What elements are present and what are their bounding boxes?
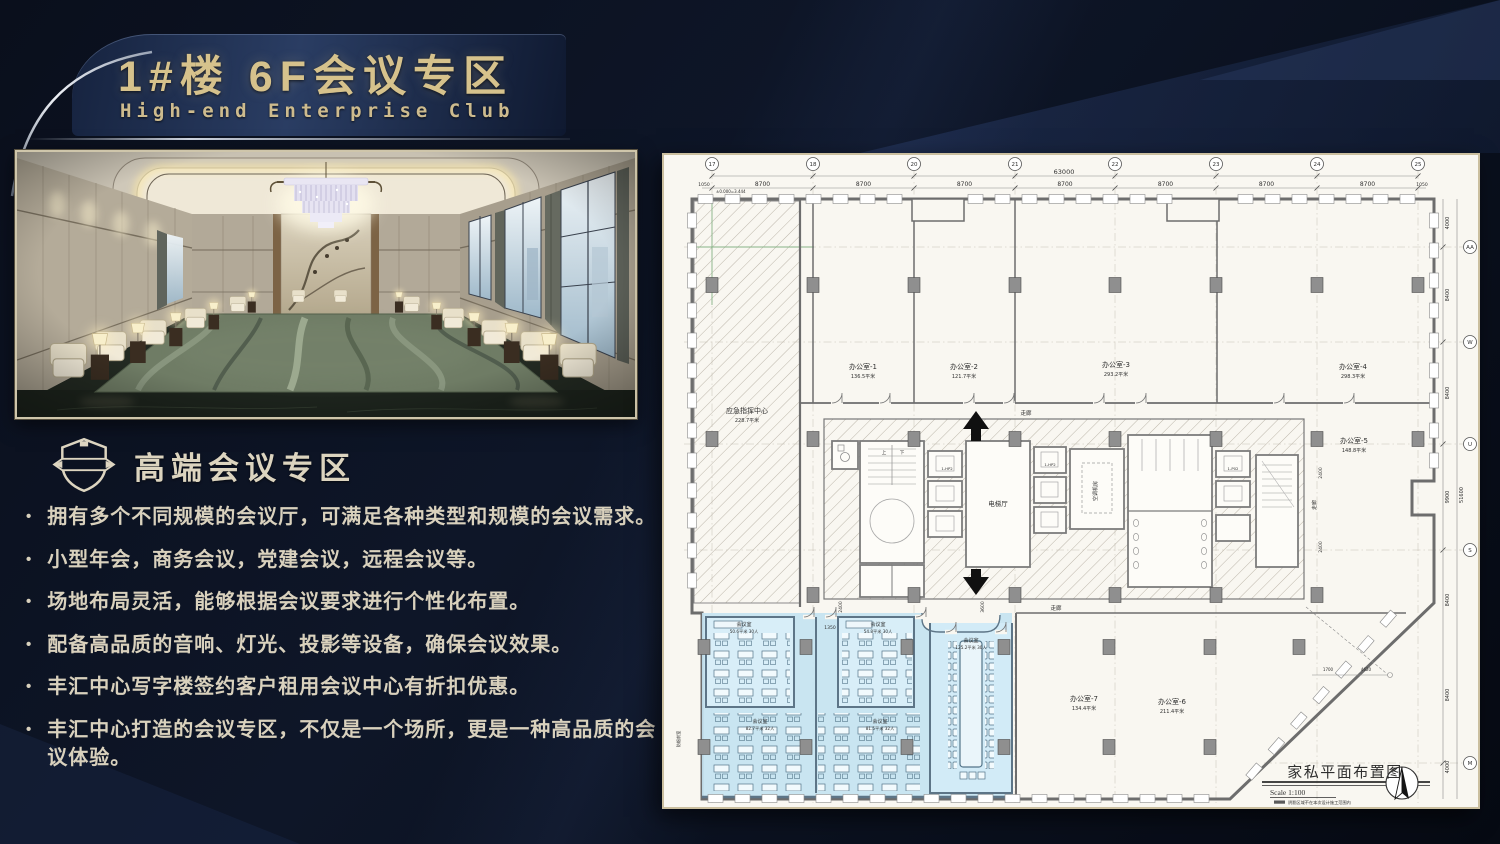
floor-plan-sheet: 1718202122232425AAWUSM办公室-1136.5平米办公室-21… xyxy=(662,153,1480,809)
plan-label: 134.4平米 xyxy=(1072,705,1096,712)
plan-label: 4620 xyxy=(1361,667,1372,672)
plan-label: 下 xyxy=(900,450,905,456)
plan-label: 8700 xyxy=(1360,181,1375,188)
plan-label: 8400 xyxy=(1445,387,1451,400)
bullet-item: •丰汇中心打造的会议专区，不仅是一个场所，更是一种高品质的会议体验。 xyxy=(26,716,658,773)
plan-label: AA xyxy=(1466,245,1474,251)
plan-label: 阴影区域不在本次设计施工范围内 xyxy=(1288,799,1351,806)
plan-label: 走廊 xyxy=(1020,409,1032,417)
plan-label: 4000 xyxy=(1445,217,1451,230)
photo-frame xyxy=(15,150,637,419)
bullet-item: •拥有多个不同规模的会议厅，可满足各种类型和规模的会议需求。 xyxy=(26,503,658,532)
plan-label: 办公室-7 xyxy=(1070,694,1098,703)
plan-label: 1350 xyxy=(824,625,836,631)
plan-label: 2400 xyxy=(1318,541,1324,553)
plan-label: S xyxy=(1468,548,1472,554)
plan-label: 51600 xyxy=(1459,487,1465,503)
plan-label: 63000 xyxy=(1054,168,1075,176)
bullet-item: •场地布局灵活，能够根据会议要求进行个性化布置。 xyxy=(26,588,658,617)
plan-label: ±0.000=3.444 xyxy=(716,189,746,194)
plan-label: 18 xyxy=(810,162,817,168)
presentation-slide: 1#楼 6F会议专区 High-end Enterprise Club xyxy=(0,0,1500,844)
plan-label: 走廊 xyxy=(1050,604,1062,612)
plan-label: 1050 xyxy=(1416,182,1428,188)
plan-label: 21 xyxy=(1012,162,1019,168)
plan-label: 8700 xyxy=(755,181,770,188)
plan-label: W xyxy=(1467,340,1473,346)
plan-label: 会议室 xyxy=(963,637,978,644)
plan-label: 8700 xyxy=(957,181,972,188)
plan-label: 会议室 xyxy=(872,718,887,725)
plan-label: 82.7平米 32人 xyxy=(746,725,775,732)
bullet-item: •配备高品质的音响、灯光、投影等设备，确保会议效果。 xyxy=(26,631,658,660)
plan-label: 办公室-3 xyxy=(1102,360,1130,369)
plan-label: M xyxy=(1468,761,1473,767)
plan-label: 2400 xyxy=(1318,467,1324,479)
plan-label: 8700 xyxy=(1158,181,1173,188)
plan-label: 办公室-6 xyxy=(1158,697,1187,706)
section-title: 高端会议专区 xyxy=(134,443,356,488)
bullet-item: •丰汇中心写字楼签约客户租用会议中心有折扣优惠。 xyxy=(26,673,658,702)
page-subtitle: High-end Enterprise Club xyxy=(120,100,515,122)
plan-label: 24 xyxy=(1314,162,1321,168)
plan-label: 22 xyxy=(1112,162,1119,168)
plan-label: 20 xyxy=(911,162,918,168)
plan-label: 1-P02 xyxy=(1228,466,1239,471)
plan-label: 23 xyxy=(1213,162,1220,168)
plan-label: 办公室-5 xyxy=(1340,436,1368,445)
plan-label: 17 xyxy=(709,162,716,168)
plan-label: 8400 xyxy=(1445,689,1451,702)
plan-label: 8400 xyxy=(1445,594,1451,607)
meeting-room-photo xyxy=(17,152,635,417)
plan-label: 136.5平米 xyxy=(851,373,875,380)
plan-label: 148.8平米 xyxy=(1342,447,1366,454)
plan-label: 2400 xyxy=(838,601,844,613)
plan-label: 应急指挥中心 xyxy=(726,406,768,415)
plan-label: 54.8平米 30人 xyxy=(864,628,893,635)
plan-label: 走廊 xyxy=(1311,500,1318,510)
plan-label: 空调机房 xyxy=(1092,481,1099,501)
page-title: 1#楼 6F会议专区 xyxy=(118,42,513,104)
plan-label: 8700 xyxy=(1057,181,1072,188)
plan-label: Scale 1:100 xyxy=(1270,788,1305,797)
shield-badge-icon xyxy=(52,436,116,494)
plan-label: 293.2平米 xyxy=(1104,371,1128,378)
plan-label: 家私平面布置图 xyxy=(1287,764,1403,781)
plan-label: 电梯厅 xyxy=(988,499,1008,508)
section-header: 高端会议专区 xyxy=(52,436,356,494)
plan-label: 121.7平米 xyxy=(952,373,976,380)
bullet-list: •拥有多个不同规模的会议厅，可满足各种类型和规模的会议需求。•小型年会，商务会议… xyxy=(26,503,658,786)
plan-label: 1-HP2 xyxy=(941,466,953,471)
plan-label: 会议室 xyxy=(736,621,751,628)
plan-label: U xyxy=(1468,442,1472,448)
plan-label: 1050 xyxy=(698,182,710,188)
plan-label: 298.3平米 xyxy=(1341,373,1365,380)
plan-label: 会议室 xyxy=(752,718,767,725)
plan-label: 125.2平米 30人 xyxy=(955,644,987,651)
bullet-item: •小型年会，商务会议，党建会议，远程会议等。 xyxy=(26,546,658,575)
plan-label: 8700 xyxy=(1259,181,1274,188)
plan-label: 228.7平米 xyxy=(735,417,759,424)
plan-label: 办公室-2 xyxy=(950,362,978,371)
background-facet xyxy=(1200,0,1500,80)
plan-label: 8700 xyxy=(856,181,871,188)
plan-label: 25 xyxy=(1415,162,1422,168)
plan-label: 211.4平米 xyxy=(1160,708,1184,715)
plan-label: 8400 xyxy=(1445,289,1451,302)
plan-label: 办公室-4 xyxy=(1339,362,1368,371)
plan-label: 4000 xyxy=(1445,761,1451,774)
plan-label: 1700 xyxy=(1323,667,1334,672)
plan-label: 防烟前室 xyxy=(675,731,682,748)
plan-label: 会议室 xyxy=(870,621,885,628)
floor-plan-drawing: 1718202122232425AAWUSM办公室-1136.5平米办公室-21… xyxy=(664,155,1478,807)
plan-label: 上 xyxy=(882,449,887,456)
plan-label: 3600 xyxy=(980,601,986,613)
plan-label: 1-HP2 xyxy=(1044,462,1056,467)
plan-label: 9900 xyxy=(1445,491,1451,504)
plan-label: 办公室-1 xyxy=(849,362,877,371)
plan-label: 81.5平米 32人 xyxy=(866,725,895,732)
plan-label: 50.6平米 30人 xyxy=(730,628,759,635)
